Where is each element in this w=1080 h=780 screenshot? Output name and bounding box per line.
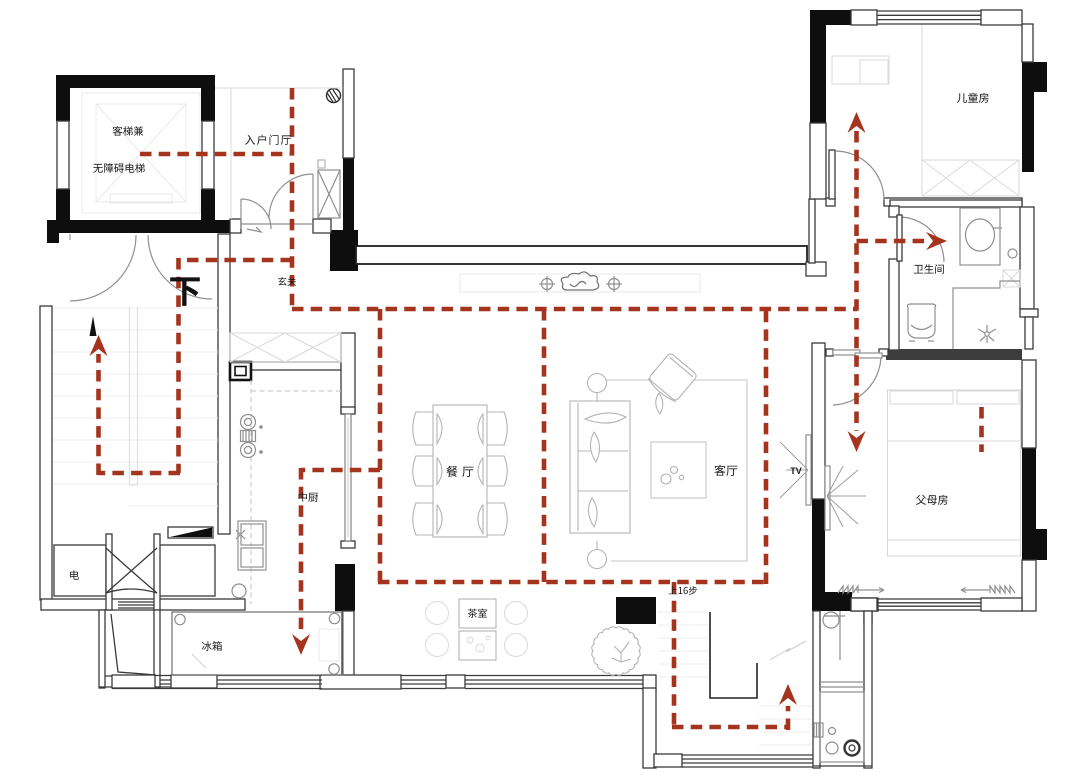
svg-text:TV: TV (790, 466, 802, 476)
